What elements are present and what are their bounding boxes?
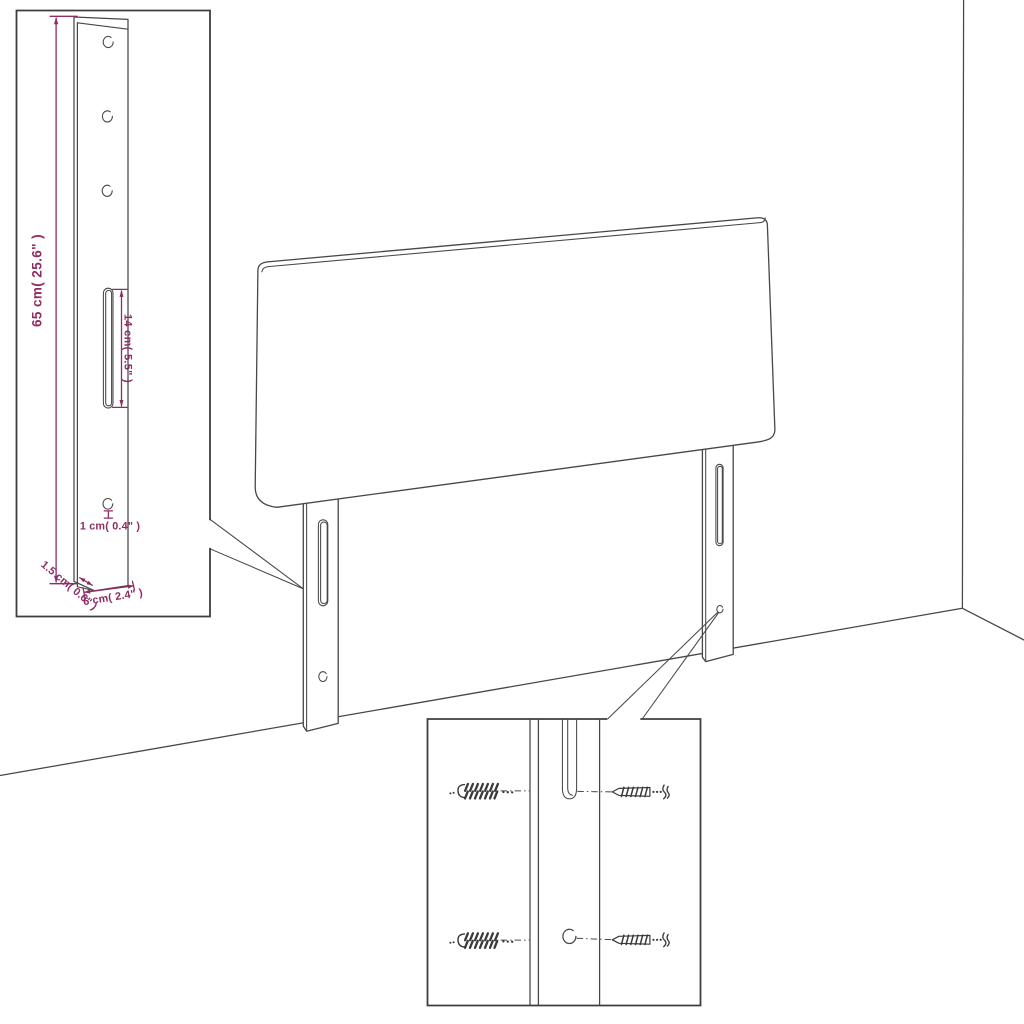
- alignment-line-top-right: [577, 791, 612, 792]
- dimension-label-leg-height: 65 cm( 25.6" ): [30, 234, 45, 327]
- headboard-assembly-diagram: 65 cm( 25.6" ) 14 cm( 5.5" ) 1 cm( 0.4" …: [0, 0, 1024, 1024]
- dimension-label-slot-length: 14 cm( 5.5" ): [122, 314, 134, 383]
- left-mounting-leg: [303, 490, 338, 731]
- hardware-detail-inset: [428, 719, 701, 1006]
- diagram-canvas: 65 cm( 25.6" ) 14 cm( 5.5" ) 1 cm( 0.4" …: [0, 0, 1024, 1024]
- leg-detail-inset: 65 cm( 25.6" ) 14 cm( 5.5" ) 1 cm( 0.4" …: [17, 11, 211, 617]
- dimension-label-hole-size: 1 cm( 0.4" ): [80, 520, 141, 532]
